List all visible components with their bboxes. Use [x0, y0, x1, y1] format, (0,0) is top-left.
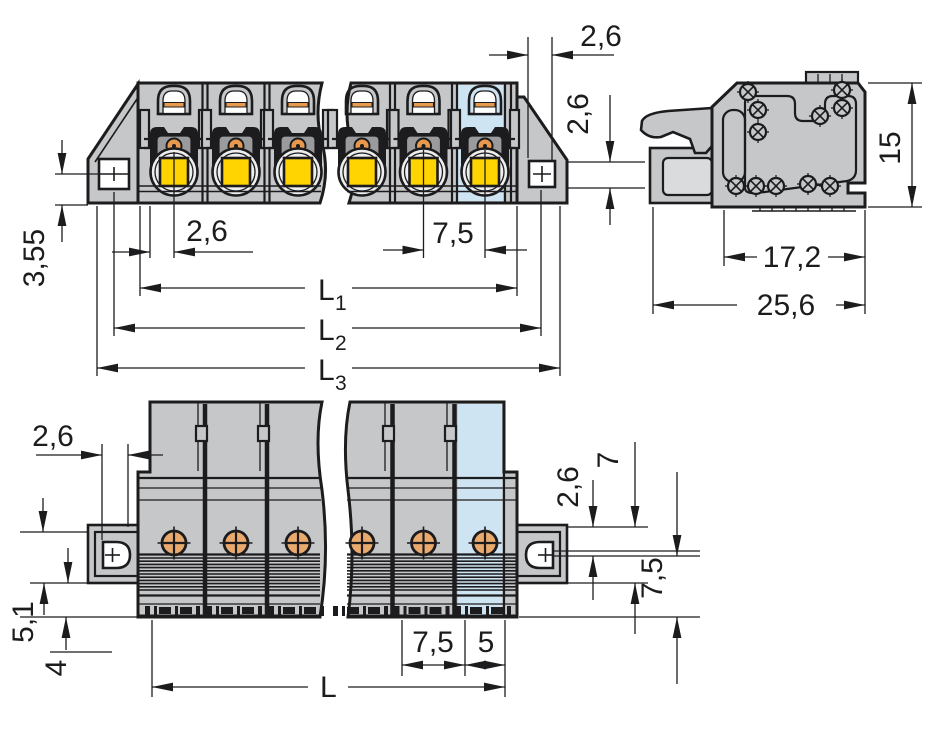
dim-bottom-collar-height: 5,1 [7, 601, 40, 643]
dim-front-screw-band: 2,6 [562, 93, 595, 135]
dim-l2-sub: 2 [335, 332, 347, 355]
dim-side-total-depth: 25,6 [757, 289, 815, 322]
dim-bottom-flange-height: 7 [592, 452, 625, 469]
dim-l2: L [318, 314, 335, 347]
dim-bottom-screw-offset: 2,6 [32, 420, 74, 453]
dim-bottom-flange-total: 7,5 [636, 557, 669, 599]
dim-side-body-depth: 17,2 [763, 241, 821, 274]
dim-bottom-length: L [320, 671, 337, 704]
dim-bottom-end-width: 5 [478, 626, 495, 659]
dim-side-height: 15 [874, 131, 907, 164]
dimensional-drawing: 2,6 7,5 L 1 L 2 L 3 3,55 2,6 2,6 15 17,2… [0, 0, 937, 730]
dim-front-flange-height: 3,55 [18, 229, 51, 287]
dim-l1-sub: 1 [335, 292, 347, 315]
dim-bottom-pin-length: 4 [40, 660, 73, 677]
plug-shaft-inner [663, 158, 712, 195]
drawing-canvas: 2,6 7,5 L 1 L 2 L 3 3,55 2,6 2,6 15 17,2… [0, 0, 937, 730]
bottom-group-1 [138, 402, 326, 617]
dim-bottom-strip: 2,6 [552, 466, 585, 508]
dim-l3: L [318, 354, 335, 387]
dim-front-end-offset: 2,6 [580, 20, 622, 53]
dim-bottom-pitch: 7,5 [412, 626, 454, 659]
dim-front-pitch: 7,5 [432, 217, 474, 250]
dim-front-pole-offset: 2,6 [186, 215, 228, 248]
dim-l3-sub: 3 [335, 372, 347, 395]
dim-l1: L [318, 274, 335, 307]
